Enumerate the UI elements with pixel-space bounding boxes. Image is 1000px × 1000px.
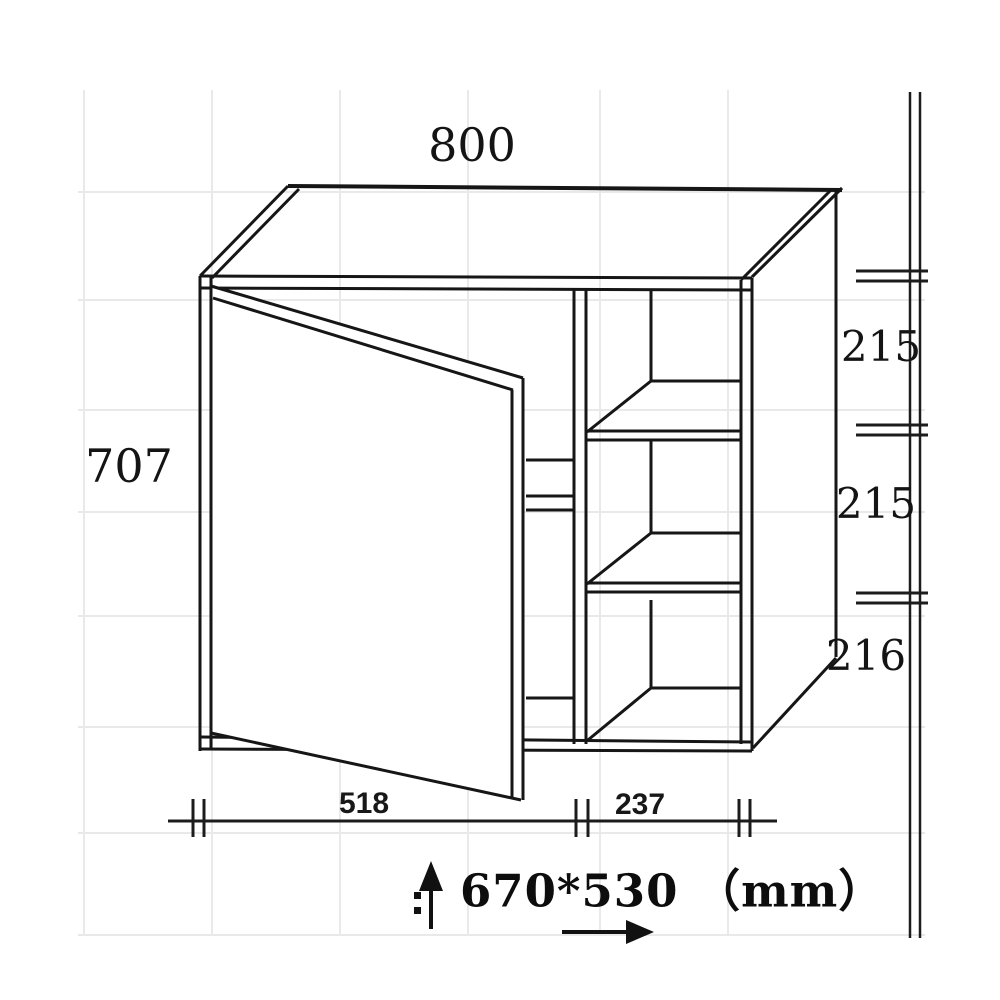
cabinet-dimension-drawing: 800 707 215 215 216 518 237 670*530 （mm） — [0, 0, 1000, 1000]
top-left-slant-inner — [212, 189, 299, 278]
left-compartment-shelf — [526, 460, 574, 698]
left-front-edge — [200, 276, 211, 751]
top-right-slant-inner — [741, 190, 831, 280]
bottom-dimension-rail — [168, 799, 777, 837]
size-note-label: 670*530 （mm） — [460, 869, 884, 914]
up-arrow-icon — [414, 861, 443, 929]
dim-label-right-segment-2: 215 — [836, 483, 916, 525]
dim-label-right-segment-1: 215 — [841, 326, 921, 368]
dim-label-right-segment-3: 216 — [826, 635, 906, 677]
dim-label-top-width: 800 — [428, 122, 516, 168]
shelf-lower — [586, 533, 741, 592]
top-left-slant-outer — [200, 186, 288, 276]
top-right-slant-outer — [752, 188, 842, 277]
right-bottom-diagonal — [753, 658, 836, 748]
top-front-edge-inner — [200, 288, 752, 290]
dim-label-bottom-segment-1: 518 — [339, 789, 389, 819]
cabinet-door-open — [211, 286, 523, 800]
dim-label-left-height: 707 — [85, 443, 173, 489]
top-back-edge — [288, 186, 842, 190]
top-front-edge-outer — [200, 276, 752, 278]
right-arrow-icon — [562, 920, 654, 944]
dim-label-bottom-segment-2: 237 — [615, 790, 665, 820]
